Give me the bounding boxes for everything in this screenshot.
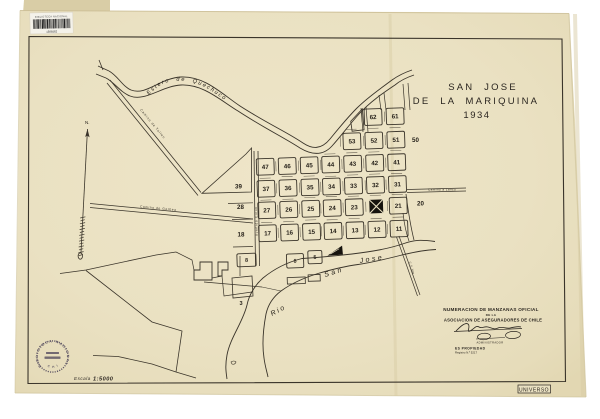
svg-text:3: 3	[239, 301, 242, 307]
svg-text:DE LA: DE LA	[486, 313, 497, 317]
svg-text:BIBLIOTECA NACIONAL: BIBLIOTECA NACIONAL	[35, 14, 68, 19]
svg-text:33: 33	[350, 183, 358, 190]
svg-text:31: 31	[394, 181, 402, 188]
svg-text:NUMERACION DE MANZANAS OFICIAL: NUMERACION DE MANZANAS OFICIAL	[443, 307, 539, 312]
svg-text:35: 35	[306, 184, 314, 191]
svg-text:Camino a Lanco: Camino a Lanco	[428, 188, 456, 192]
svg-text:6: 6	[294, 259, 297, 265]
svg-text:46: 46	[284, 163, 292, 170]
svg-text:UNIVERSO: UNIVERSO	[519, 387, 549, 393]
svg-text:1386582: 1386582	[46, 29, 57, 33]
svg-text:27: 27	[263, 207, 271, 214]
svg-text:23: 23	[351, 204, 359, 211]
svg-text:21: 21	[395, 203, 403, 210]
svg-text:12: 12	[374, 226, 382, 233]
svg-text:14: 14	[330, 228, 338, 235]
svg-text:SAN JOSE: SAN JOSE	[448, 82, 518, 93]
svg-text:62: 62	[370, 114, 378, 121]
svg-text:51: 51	[392, 137, 400, 144]
svg-text:N.: N.	[85, 120, 90, 125]
svg-text:36: 36	[285, 185, 293, 192]
svg-text:Registro N.º 5217: Registro N.º 5217	[455, 351, 477, 355]
svg-text:8: 8	[245, 258, 248, 264]
svg-text:39: 39	[235, 184, 242, 191]
svg-text:41: 41	[393, 159, 401, 166]
svg-text:15: 15	[308, 229, 316, 236]
svg-text:34: 34	[328, 184, 336, 191]
svg-text:ASOCIACION DE ASEGURADORES DE: ASOCIACION DE ASEGURADORES DE CHILE	[444, 318, 542, 323]
svg-text:25: 25	[307, 206, 315, 213]
svg-text:16: 16	[286, 230, 294, 237]
svg-text:18: 18	[238, 232, 245, 239]
svg-text:43: 43	[349, 161, 357, 168]
svg-text:37: 37	[263, 186, 271, 193]
svg-text:13: 13	[352, 227, 360, 234]
svg-text:53: 53	[348, 138, 356, 145]
svg-text:32: 32	[372, 182, 380, 189]
svg-text:50: 50	[412, 137, 419, 144]
svg-text:17: 17	[264, 230, 272, 237]
svg-text:47: 47	[262, 164, 270, 171]
svg-text:24: 24	[329, 205, 337, 212]
svg-text:26: 26	[285, 207, 293, 214]
svg-text:42: 42	[371, 160, 379, 167]
svg-text:11: 11	[396, 226, 403, 233]
svg-text:1:5000: 1:5000	[93, 377, 114, 383]
svg-text:20: 20	[417, 201, 424, 208]
svg-text:ADMINISTRADOR: ADMINISTRADOR	[477, 341, 504, 345]
svg-text:61: 61	[392, 113, 400, 120]
svg-text:1934: 1934	[463, 110, 490, 121]
svg-text:Escala: Escala	[74, 376, 91, 381]
svg-text:44: 44	[327, 162, 335, 169]
svg-text:DE LA MARIQUINA: DE LA MARIQUINA	[413, 96, 539, 107]
svg-text:52: 52	[370, 138, 378, 145]
svg-text:45: 45	[306, 162, 314, 169]
svg-text:28: 28	[237, 204, 244, 211]
